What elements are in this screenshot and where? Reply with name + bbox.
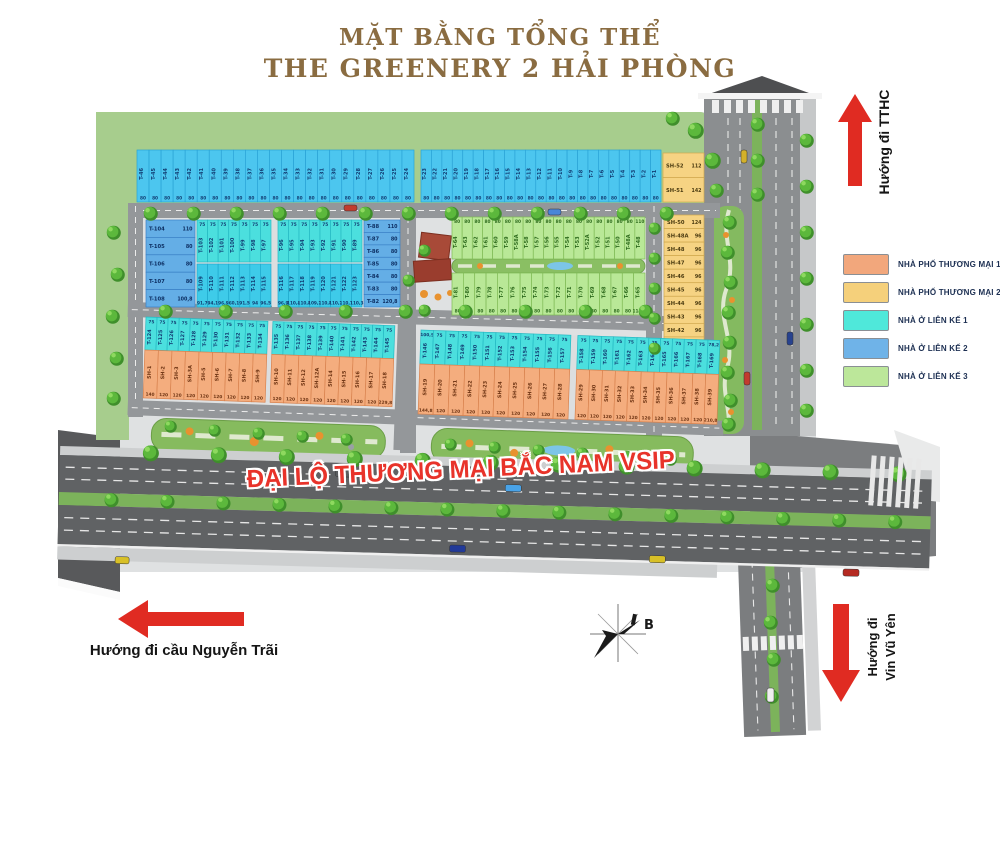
svg-text:T-113: T-113 [241,276,247,292]
svg-text:120: 120 [313,397,322,403]
svg-text:T-126: T-126 [169,330,176,346]
south-road [738,550,821,737]
svg-text:T-150: T-150 [472,344,479,360]
svg-text:T-5: T-5 [610,169,616,178]
svg-text:SH-20: SH-20 [437,379,444,397]
svg-text:T-119: T-119 [311,276,317,292]
svg-text:T-102: T-102 [209,237,215,253]
svg-text:T-120: T-120 [321,276,327,292]
svg-text:T-105: T-105 [149,244,165,250]
svg-text:T-55: T-55 [555,236,561,248]
svg-text:80: 80 [653,196,659,202]
svg-text:SH-24: SH-24 [497,381,504,399]
svg-text:T-51: T-51 [605,236,611,248]
svg-text:SH-46: SH-46 [667,274,685,280]
svg-text:75: 75 [628,339,634,345]
svg-text:T-50: T-50 [616,236,622,248]
svg-text:75: 75 [343,222,349,228]
svg-text:T-59: T-59 [504,236,510,248]
car-icon [505,484,521,491]
svg-text:T-22: T-22 [433,168,439,180]
svg-text:80: 80 [391,262,398,268]
svg-text:120: 120 [340,398,349,404]
svg-text:140: 140 [145,392,154,398]
svg-text:80: 80 [559,196,565,202]
svg-text:96,5: 96,5 [260,301,271,307]
svg-text:T-33: T-33 [296,168,302,180]
svg-text:T-13: T-13 [527,168,533,180]
svg-text:80: 80 [580,196,586,202]
svg-text:80: 80 [321,196,327,202]
svg-text:T-56: T-56 [545,236,551,248]
svg-text:75: 75 [675,341,681,347]
svg-text:144,8: 144,8 [419,407,433,413]
svg-text:75: 75 [499,335,505,341]
legend-swatch-lienke1 [843,310,889,331]
svg-text:80: 80 [186,244,193,250]
svg-text:75: 75 [231,222,237,228]
svg-text:80: 80 [381,196,387,202]
svg-text:T-10: T-10 [558,168,564,180]
legend-swatch-shophouse1 [843,254,889,275]
svg-text:SH-25: SH-25 [512,381,519,399]
svg-text:75: 75 [210,222,216,228]
svg-text:80: 80 [477,309,483,315]
svg-text:120: 120 [481,410,490,416]
svg-text:80: 80 [186,279,193,285]
svg-text:T-27: T-27 [368,168,374,180]
svg-text:SH-44: SH-44 [667,301,685,307]
svg-text:SH-47: SH-47 [667,260,685,266]
direction-label-vin-line1: Hướng đi [864,594,882,700]
car-icon [449,545,465,552]
svg-text:80: 80 [586,219,592,225]
svg-text:T-151: T-151 [485,345,492,361]
svg-text:120: 120 [254,395,263,401]
svg-text:80: 80 [511,309,517,315]
svg-text:T-159: T-159 [591,348,598,364]
car-icon [548,209,561,215]
svg-text:T-106: T-106 [149,262,165,268]
svg-text:75: 75 [248,323,254,329]
svg-text:SH-3: SH-3 [174,366,180,380]
svg-text:T-137: T-137 [296,334,303,350]
svg-text:T-2: T-2 [641,169,647,178]
svg-text:80: 80 [496,196,502,202]
block-e_row1_e: T-15875T-15975T-16075T-16175T-16275T-163… [577,335,720,374]
svg-text:SH-29: SH-29 [578,384,585,402]
svg-text:T-167: T-167 [685,352,692,368]
svg-text:120: 120 [654,416,663,422]
svg-text:75: 75 [536,336,542,342]
svg-text:T-93: T-93 [311,239,317,251]
svg-text:T-37: T-37 [247,168,253,180]
svg-text:80: 80 [486,196,492,202]
svg-text:SH-50: SH-50 [667,220,685,226]
svg-text:80: 80 [357,196,363,202]
svg-text:SH-28: SH-28 [557,383,564,401]
svg-text:T-98: T-98 [251,239,257,251]
block-a_row1_e: T-9675T-9575T-9475T-9375T-9275T-9175T-90… [278,220,362,262]
svg-text:T-75: T-75 [522,286,528,298]
svg-text:80: 80 [236,196,242,202]
svg-text:100,8: 100,8 [177,296,193,302]
svg-text:80: 80 [475,196,481,202]
svg-text:T-158: T-158 [579,348,586,364]
svg-text:SH-9: SH-9 [255,369,261,383]
compass: B [590,604,654,662]
svg-text:120: 120 [541,412,550,418]
svg-text:80: 80 [405,196,411,202]
svg-text:T-145: T-145 [384,337,391,353]
arrow-left-nguyen-trai-icon [118,600,244,638]
svg-text:80: 80 [200,196,206,202]
svg-text:T-128: T-128 [191,330,198,346]
car-icon [741,150,747,163]
svg-text:60,1: 60,1 [229,301,240,307]
svg-text:T-57: T-57 [534,236,540,248]
block-d_row1_w: T-12475T-12575T-12675T-12775T-12875T-129… [145,317,268,354]
car-icon [649,555,665,562]
svg-text:80: 80 [391,286,398,292]
svg-text:80: 80 [602,309,608,315]
svg-text:120: 120 [616,414,625,420]
svg-text:SH-33: SH-33 [630,385,637,403]
svg-text:120: 120 [526,411,535,417]
svg-text:T-111: T-111 [219,276,225,292]
master-plan-page: T-4680T-4580T-4480T-4380T-4280T-4180T-40… [0,0,1000,846]
direction-label-vin-vu-yen: Hướng đi Vin Vũ Yên [864,594,899,700]
svg-text:96: 96 [695,247,702,253]
svg-text:80: 80 [188,196,194,202]
svg-text:T-35: T-35 [272,168,278,180]
svg-text:75: 75 [286,324,292,330]
svg-text:T-157: T-157 [560,347,567,363]
svg-text:75: 75 [237,322,243,328]
block-d_row1_e: T-13575T-13675T-13775T-13875T-13975T-140… [272,321,395,358]
legend-label: NHÀ PHỐ THƯƠNG MẠI 1 [898,260,1000,269]
svg-text:120: 120 [354,399,363,405]
svg-text:T-135: T-135 [274,333,281,349]
svg-text:T-65: T-65 [635,286,641,298]
arrow-up-tthc-icon [838,94,872,186]
svg-text:75: 75 [170,320,176,326]
svg-text:T-162: T-162 [626,349,633,365]
svg-text:75: 75 [220,222,226,228]
svg-text:75: 75 [342,326,348,332]
svg-text:SH-11: SH-11 [287,368,294,386]
svg-text:T-14: T-14 [516,168,522,180]
svg-text:T-12: T-12 [537,168,543,180]
svg-text:T-94: T-94 [300,239,306,251]
svg-text:120,8: 120,8 [382,299,398,305]
svg-text:75: 75 [581,338,587,344]
svg-text:T-71: T-71 [567,286,573,298]
legend-item-lienke1: NHÀ Ở LIÊN KẾ 1 [843,310,1000,331]
svg-text:80: 80 [391,249,398,255]
svg-text:T-68: T-68 [601,286,607,298]
svg-text:SH-36: SH-36 [668,387,675,405]
svg-text:T-44: T-44 [163,168,169,180]
title-line1: MẶT BẰNG TỔNG THỂ [0,24,1000,51]
svg-text:T-99: T-99 [241,239,247,251]
svg-text:110: 110 [182,227,193,233]
svg-text:80: 80 [345,196,351,202]
svg-text:100,5: 100,5 [420,332,434,338]
svg-text:96: 96 [695,288,702,294]
svg-text:T-69: T-69 [590,286,596,298]
svg-text:SH-52: SH-52 [666,163,684,169]
svg-text:75: 75 [226,322,232,328]
svg-text:SH-6: SH-6 [214,367,220,381]
svg-text:SH-45: SH-45 [667,288,685,294]
svg-text:91,7: 91,7 [197,301,208,307]
svg-text:75: 75 [616,339,622,345]
svg-text:94,1: 94,1 [208,301,219,307]
svg-text:96: 96 [695,315,702,321]
svg-text:T-19: T-19 [464,168,470,180]
svg-text:T-168: T-168 [697,352,704,368]
svg-text:75: 75 [204,321,210,327]
svg-text:T-31: T-31 [320,168,326,180]
svg-text:96: 96 [695,301,702,307]
svg-text:75: 75 [275,324,281,330]
block-d_row2_w: SH-1140SH-2120SH-3120SH-3A120SH-5120SH-6… [143,350,267,402]
svg-text:T-8: T-8 [579,169,585,178]
svg-text:75: 75 [592,338,598,344]
svg-text:T-25: T-25 [392,168,398,180]
svg-text:120: 120 [667,416,676,422]
svg-text:80: 80 [273,196,279,202]
svg-text:80: 80 [186,262,193,268]
svg-text:120: 120 [173,392,182,398]
svg-text:T-107: T-107 [149,279,165,285]
svg-text:75: 75 [663,340,669,346]
svg-text:96: 96 [695,260,702,266]
svg-text:SH-42: SH-42 [667,328,685,334]
svg-text:80: 80 [465,196,471,202]
svg-text:T-85: T-85 [367,262,380,268]
svg-text:T-96: T-96 [279,239,285,251]
svg-text:T-3: T-3 [631,169,637,178]
svg-text:T-84: T-84 [367,274,380,280]
svg-text:80: 80 [297,196,303,202]
svg-text:120: 120 [680,417,689,423]
svg-text:T-118: T-118 [300,276,306,292]
svg-text:75: 75 [312,222,318,228]
svg-text:T-38: T-38 [235,168,241,180]
svg-text:SH-21: SH-21 [452,379,459,397]
svg-text:80: 80 [485,219,491,225]
svg-text:80: 80 [434,196,440,202]
svg-text:SH-3A: SH-3A [187,365,194,383]
svg-text:T-21: T-21 [443,168,449,180]
svg-text:210,8: 210,8 [704,417,718,423]
block-d_row2_e: SH-10120SH-11120SH-12120SH-12A120SH-1412… [270,354,394,406]
svg-text:T-146: T-146 [422,342,429,358]
svg-text:96: 96 [695,233,702,239]
svg-text:T-72: T-72 [556,286,562,298]
svg-text:T-79: T-79 [476,286,482,298]
svg-text:SH-34: SH-34 [643,386,650,404]
svg-text:T-54: T-54 [565,236,571,248]
svg-text:75: 75 [386,327,392,333]
svg-text:110,3: 110,3 [350,301,364,307]
legend: NHÀ PHỐ THƯƠNG MẠI 1 NHÀ PHỐ THƯƠNG MẠI … [843,254,1000,394]
svg-text:T-110: T-110 [209,276,215,292]
svg-text:T-142: T-142 [351,336,358,352]
svg-text:T-101: T-101 [219,237,225,253]
svg-text:75: 75 [333,222,339,228]
svg-text:120: 120 [629,415,638,421]
svg-text:80: 80 [538,196,544,202]
svg-text:T-88: T-88 [367,224,380,230]
svg-text:T-24: T-24 [404,168,410,180]
svg-text:80: 80 [212,196,218,202]
svg-text:SH-43: SH-43 [667,315,685,321]
svg-text:75: 75 [263,222,269,228]
svg-text:80: 80 [556,219,562,225]
alley [272,220,278,307]
legend-item-shophouse1: NHÀ PHỐ THƯƠNG MẠI 1 [843,254,1000,275]
svg-text:T-62: T-62 [473,236,479,248]
svg-text:T-115: T-115 [262,276,268,292]
direction-label-tthc: Hướng đi TTHC [876,86,892,198]
svg-text:T-48: T-48 [636,236,642,248]
svg-text:80: 80 [568,309,574,315]
svg-text:75: 75 [436,333,442,339]
svg-text:80: 80 [632,196,638,202]
svg-text:80: 80 [611,196,617,202]
svg-text:75: 75 [199,222,205,228]
svg-text:75: 75 [301,222,307,228]
svg-text:80: 80 [642,196,648,202]
svg-text:T-154: T-154 [522,346,529,362]
svg-text:T-147: T-147 [435,343,442,359]
legend-label: NHÀ PHỐ THƯƠNG MẠI 2 [898,288,1000,297]
svg-text:80: 80 [444,196,450,202]
svg-text:80: 80 [489,309,495,315]
legend-swatch-shophouse2 [843,282,889,303]
svg-text:75: 75 [687,341,693,347]
svg-text:SH-8: SH-8 [241,368,247,382]
svg-text:120: 120 [200,393,209,399]
legend-item-lienke3: NHÀ Ở LIÊN KẾ 3 [843,366,1000,387]
svg-text:T-117: T-117 [290,276,296,292]
svg-text:91,5: 91,5 [239,301,250,307]
svg-text:110: 110 [635,219,644,225]
svg-text:80: 80 [500,309,506,315]
svg-text:120: 120 [590,413,599,419]
svg-text:75: 75 [511,335,517,341]
arrow-down-vin-vu-yen-icon [822,604,860,702]
svg-text:T-122: T-122 [342,276,348,292]
svg-text:T-156: T-156 [547,347,554,363]
svg-text:T-30: T-30 [332,168,338,180]
svg-text:78,2: 78,2 [708,342,719,348]
svg-text:T-41: T-41 [199,168,205,180]
svg-text:124: 124 [691,220,702,226]
svg-text:75: 75 [308,325,314,331]
svg-text:T-129: T-129 [202,331,209,347]
block-sh_top: SH-52112SH-51142 [663,153,704,202]
svg-text:96: 96 [695,328,702,334]
svg-text:T-160: T-160 [602,349,609,365]
svg-text:80: 80 [534,309,540,315]
svg-text:SH-15: SH-15 [341,370,348,388]
svg-text:120: 120 [436,408,445,414]
svg-text:T-11: T-11 [547,168,553,180]
svg-text:T-6: T-6 [600,169,606,178]
svg-text:T-42: T-42 [187,168,193,180]
block-b_row2: T-8180T-8080T-7980T-7880T-7780T-7680T-75… [452,273,646,315]
svg-text:T-155: T-155 [535,346,542,362]
svg-text:75: 75 [604,338,610,344]
svg-text:80: 80 [164,196,170,202]
svg-text:T-17: T-17 [485,168,491,180]
svg-text:75: 75 [291,222,297,228]
svg-text:120: 120 [466,409,475,415]
svg-text:120: 120 [556,412,565,418]
green-block-median-park [452,259,645,273]
svg-text:75: 75 [461,333,467,339]
svg-text:T-133: T-133 [246,332,253,348]
block-e_row2_w: SH-19144,8SH-20120SH-21120SH-22120SH-231… [418,364,570,419]
svg-text:T-97: T-97 [262,239,268,251]
svg-text:120: 120 [213,394,222,400]
svg-text:T-144: T-144 [373,337,380,353]
svg-text:229,8: 229,8 [378,400,392,406]
svg-text:T-124: T-124 [147,329,154,345]
svg-text:T-103: T-103 [198,237,204,253]
svg-text:T-66: T-66 [624,286,630,298]
svg-text:80: 80 [140,196,146,202]
svg-text:80: 80 [464,219,470,225]
svg-text:T-70: T-70 [579,286,585,298]
svg-text:80: 80 [505,219,511,225]
svg-text:80: 80 [601,196,607,202]
svg-text:75: 75 [242,222,248,228]
svg-text:75: 75 [474,334,480,340]
svg-text:80: 80 [621,196,627,202]
svg-text:120: 120 [186,393,195,399]
svg-text:T-63: T-63 [463,236,469,248]
legend-label: NHÀ Ở LIÊN KẾ 2 [898,344,968,353]
svg-text:120: 120 [367,399,376,405]
svg-text:80: 80 [548,196,554,202]
svg-text:80: 80 [546,219,552,225]
svg-text:80: 80 [285,196,291,202]
svg-text:120: 120 [496,410,505,416]
svg-text:SH-30: SH-30 [591,384,598,402]
svg-text:T-15: T-15 [506,168,512,180]
svg-text:T-91: T-91 [332,239,338,251]
svg-text:T-140: T-140 [329,335,336,351]
svg-text:T-139: T-139 [318,335,325,351]
direction-label-vin-line2: Vin Vũ Yên [882,594,900,700]
svg-text:SH-7: SH-7 [228,368,234,382]
svg-text:80: 80 [614,309,620,315]
svg-text:80: 80 [625,309,631,315]
svg-text:T-78: T-78 [488,286,494,298]
svg-text:75: 75 [699,342,705,348]
svg-text:SH-35: SH-35 [655,386,662,404]
svg-text:SH-10: SH-10 [273,368,280,386]
svg-text:T-9: T-9 [568,169,574,178]
svg-text:SH-48: SH-48 [667,247,685,253]
direction-label-nguyen-trai: Hướng đi cầu Nguyễn Trãi [78,642,290,659]
car-icon [744,372,750,385]
